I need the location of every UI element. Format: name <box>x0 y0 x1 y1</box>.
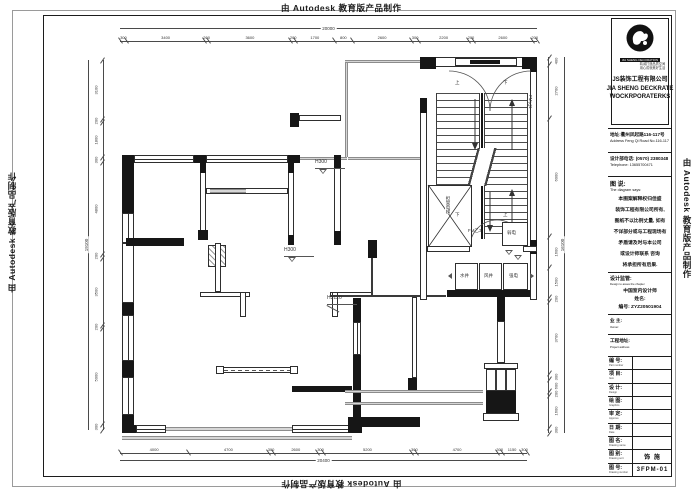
title-table-row: 图 别: Drawing sort 饰 施 <box>608 450 672 463</box>
watermark-bottom: 由 Autodesk 教育版产品制作 <box>281 478 401 490</box>
duct-shaft <box>486 391 516 413</box>
title-table-row: 编 号: Part number <box>608 357 672 370</box>
site-section: 工程地址: Project address <box>608 335 672 357</box>
address-section: 地址:衢州凤起路116-117号 Address Feng Qi Road No… <box>608 129 672 153</box>
owner-section: 业 主: Owner: <box>608 315 672 335</box>
title-table-row: 审 定: Approve <box>608 410 672 423</box>
door-marker-icon <box>514 255 522 260</box>
title-block: JIA SHENG DECORATION 精诚打造品质空间 用心成就美好生活 J… <box>608 15 672 477</box>
dim-chain-right: 4002700600016001500200370030060020016003… <box>548 57 558 433</box>
company-logo-icon <box>623 23 657 57</box>
dim-chain-left: 31002001800300480020035002005000300 <box>94 60 104 430</box>
balcony-rail <box>122 436 352 440</box>
elevator-label: 担架电梯 <box>445 196 451 214</box>
title-table-row: 日 期: Date <box>608 424 672 437</box>
title-table-row: 图 名: Drawing name <box>608 437 672 450</box>
watermark-right: 由 Autodesk 教育版产品制作 <box>681 158 693 278</box>
door-label-fm1: FM乙1 <box>527 95 533 109</box>
dim-overall-top: 20000 <box>120 24 537 29</box>
watermark-top: 由 Autodesk 教育版产品制作 <box>281 2 401 14</box>
door-marker-icon <box>505 250 513 255</box>
dim-overall-right: 16100 <box>560 57 565 433</box>
level-marker-h300-a: H300 <box>315 150 345 174</box>
elevator-x-icon <box>428 185 472 247</box>
level-marker-h300-b: H300 <box>284 238 314 262</box>
dim-chain-bottom: 400047003002600300520030047003001150300 <box>120 444 527 454</box>
dim-overall-left: 19100 <box>84 60 89 430</box>
dim-chain-top: 3003400200360020017008002600300220020026… <box>120 32 537 42</box>
level-marker-h3120: H3120 <box>327 286 357 306</box>
shaft-arrow-icon <box>530 273 534 279</box>
door-label-fm3: FM乙3 <box>468 228 482 234</box>
watermark-left: 由 Autodesk 教育版产品制作 <box>6 172 18 292</box>
supervision-section: 设计监管: Design to asses the chapter 中国室内设计… <box>608 273 672 315</box>
company-panel: JIA SHENG DECORATION 精诚打造品质空间 用心成就美好生活 J… <box>608 15 672 129</box>
sliding-door <box>224 367 290 373</box>
logo-tagline-2: 用心成就美好生活 <box>615 66 665 70</box>
title-table-row: 绘 图: Graphics <box>608 397 672 410</box>
drawing-sheet: 由 Autodesk 教育版产品制作 由 Autodesk 教育版产品制作 由 … <box>0 0 700 494</box>
company-name-en: JIA SHENG DECKRATE WOCKRPORATERKS <box>607 86 674 101</box>
shaft-arrow-icon <box>448 273 452 279</box>
title-table-row: 项 目: Item <box>608 370 672 383</box>
company-name-cn: JS装饰工程有限公司 <box>612 74 667 83</box>
dim-overall-bottom: 20400 <box>120 456 527 461</box>
title-table-row: 设 计: Design <box>608 384 672 397</box>
title-table-row: 图 号: Drawing number 3FPM-01 <box>608 464 672 476</box>
title-table: 编 号: Part number 项 目: Item 设 计: Design <box>608 357 672 477</box>
notes-section: 图 说: The diagram says: 本图案解释权归佳盛装饰工程有限公司… <box>608 177 672 273</box>
phone-section: 设计部电话: (0570) 2380348 Telephone: 1365570… <box>608 153 672 177</box>
